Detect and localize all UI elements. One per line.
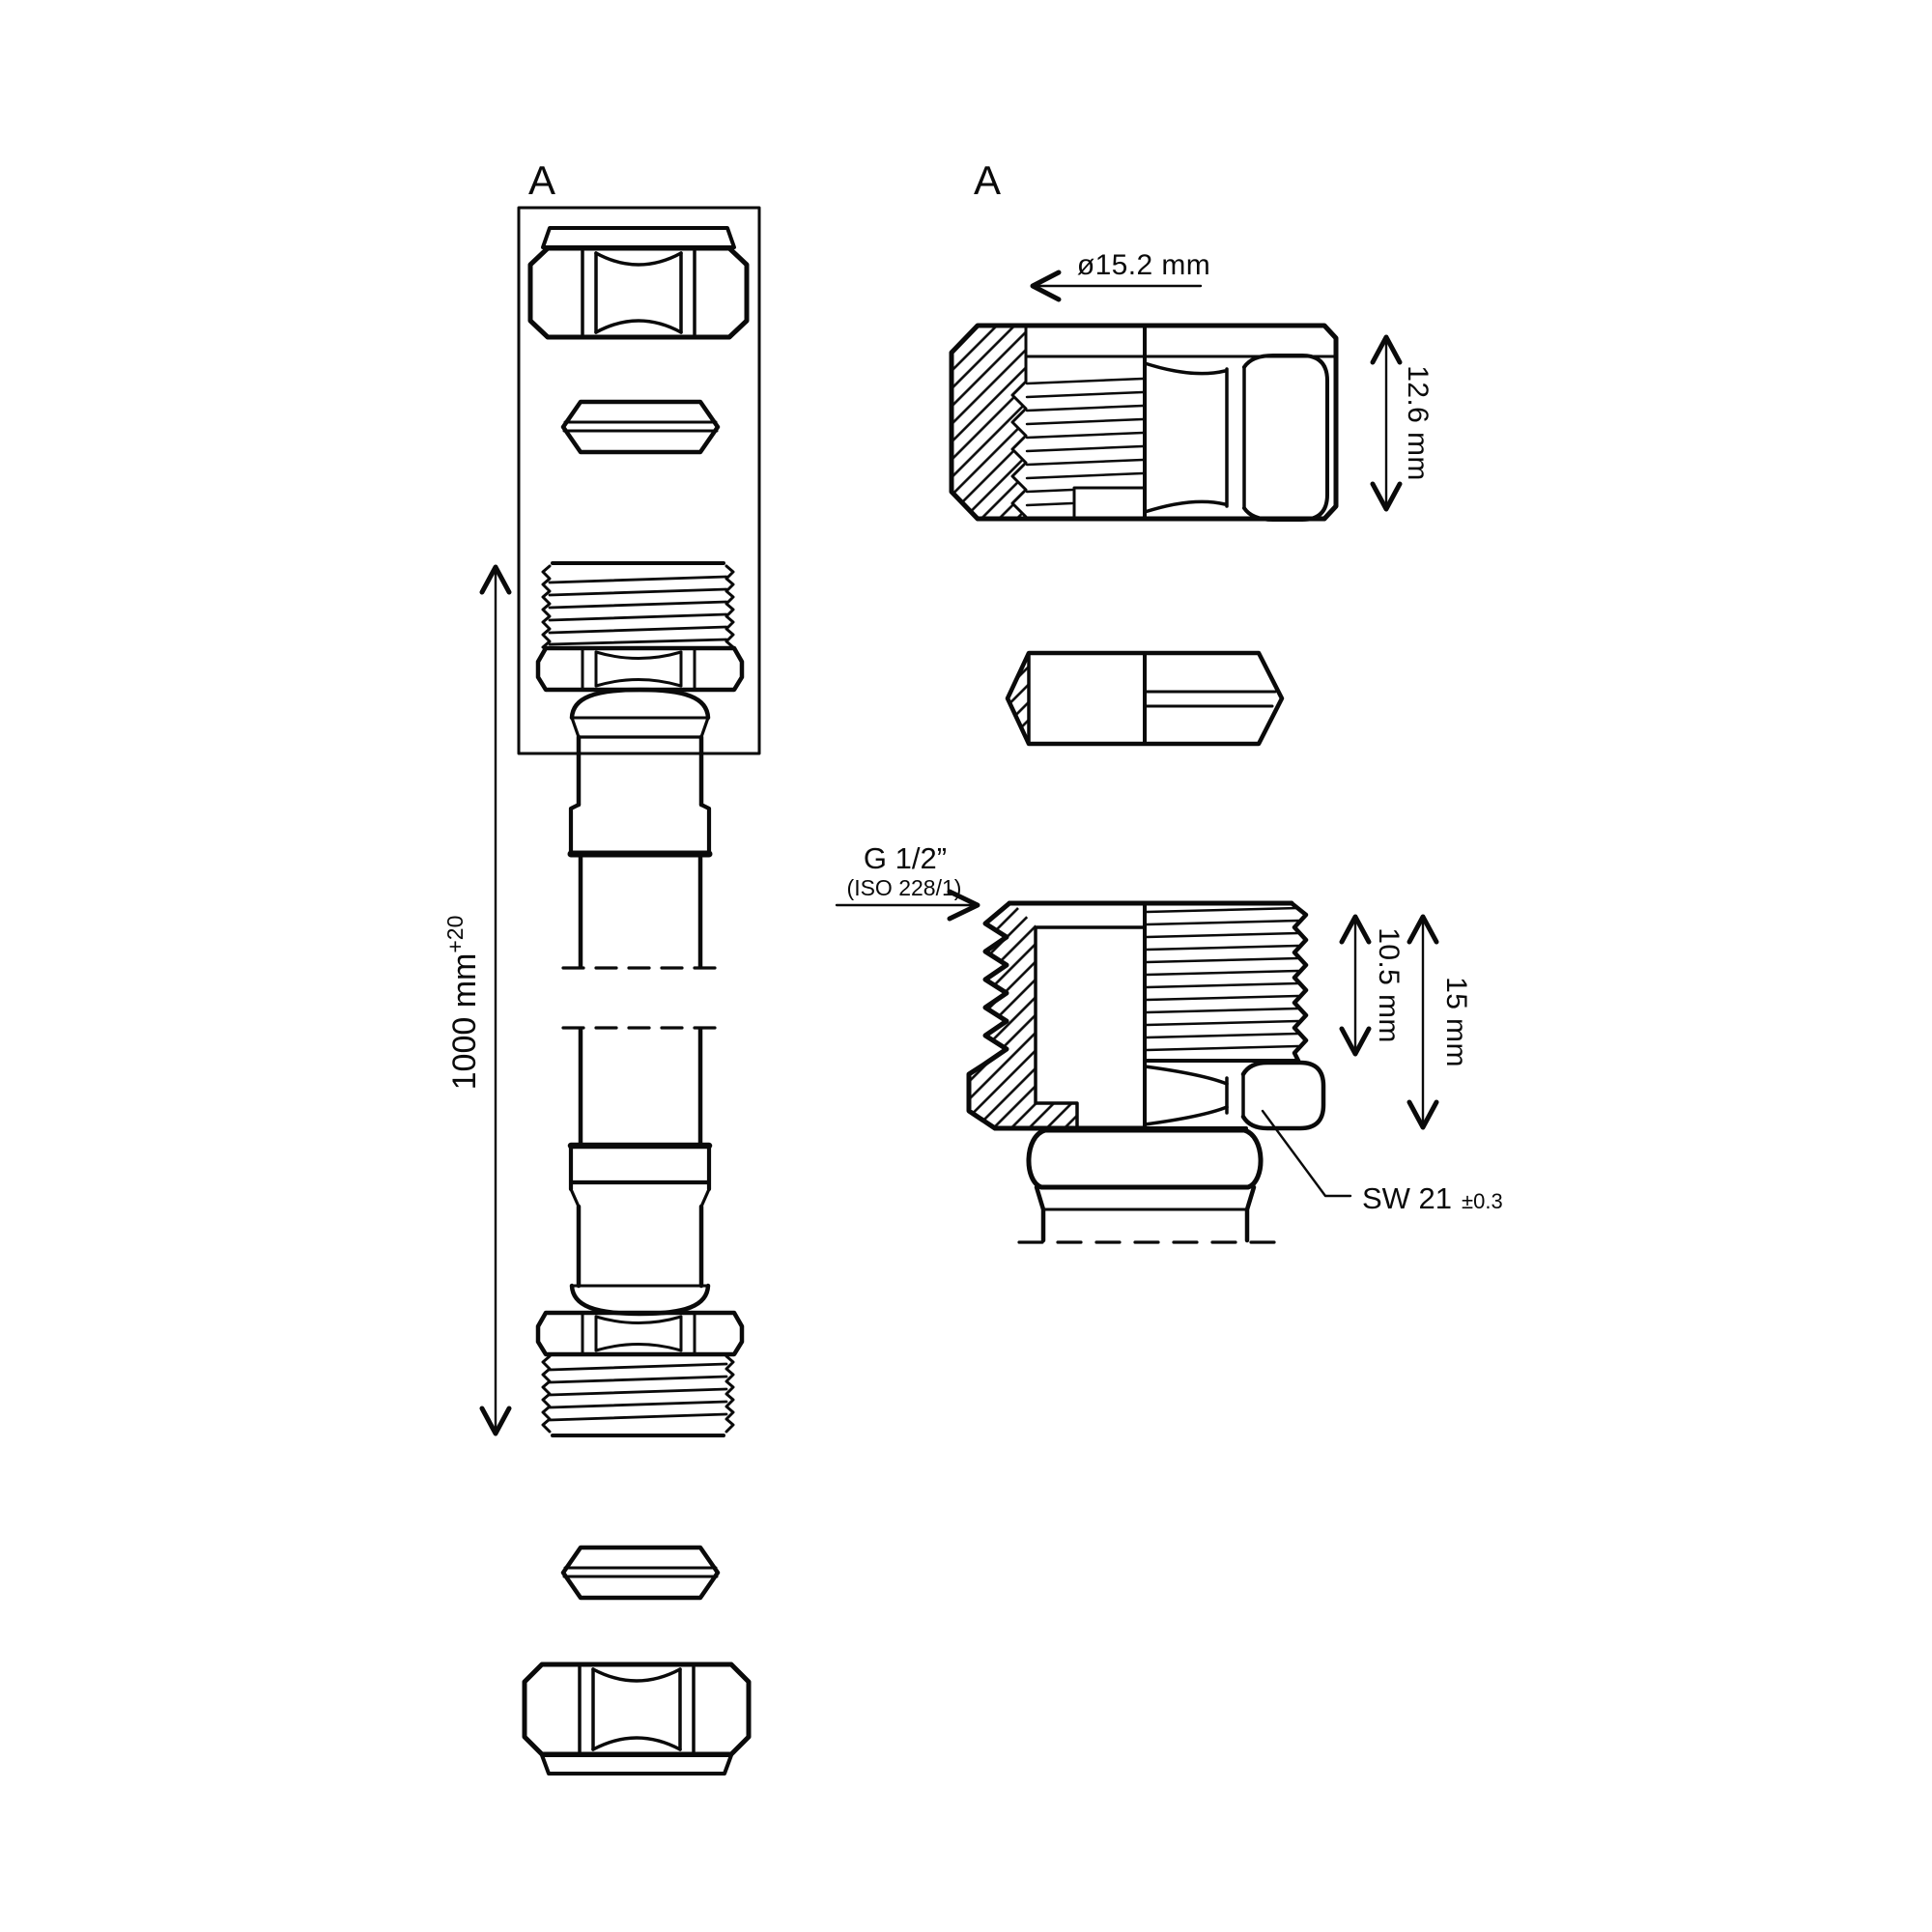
nut-facet-arcs <box>596 253 681 332</box>
nut-outline <box>530 248 747 337</box>
nut-facet-arcs <box>593 1669 680 1749</box>
detail-view-a: A ø15.2 mm <box>837 157 1503 1242</box>
seal-bottom <box>563 1548 718 1598</box>
insert-length-text: 15 mm <box>1440 977 1472 1067</box>
nut-flange <box>543 228 734 247</box>
pipe-walls <box>1037 1187 1254 1240</box>
diameter-text: ø15.2 mm <box>1077 249 1210 281</box>
hex-facet-arcs <box>1145 1066 1227 1124</box>
pipe-upper-walls <box>581 858 700 967</box>
external-thread-profile <box>1292 903 1306 1061</box>
hex-facet-edges <box>582 650 695 688</box>
dimension-diameter: ø15.2 mm <box>1032 249 1210 299</box>
seal-parting-lines <box>1145 692 1275 706</box>
fitting-bottom <box>538 1146 742 1435</box>
detail-callout-label: A <box>528 157 555 203</box>
dimension-insert-length: 15 mm <box>1409 916 1472 1128</box>
collar-bulge <box>572 1286 708 1314</box>
hex-facet-edges <box>1227 1074 1243 1117</box>
dimension-nut-height: 12.6 mm <box>1373 336 1434 510</box>
thread-profile-left <box>543 566 550 647</box>
leader-line <box>1263 1111 1350 1196</box>
pipe-break-lines <box>563 968 718 1028</box>
seal-parting-lines <box>564 422 717 431</box>
thread-profile-left <box>543 1356 550 1432</box>
seal-parting-lines <box>564 1568 717 1577</box>
sleeve-band <box>571 805 709 852</box>
thread-callout: G 1/2” (ISO 228/1) <box>837 841 978 919</box>
drawing-sheet: A <box>0 0 1932 1932</box>
dimension-thread-length: 10.5 mm <box>1342 916 1405 1055</box>
section-hatch <box>952 326 1026 519</box>
external-thread-lines <box>1147 908 1298 1050</box>
pipe-lower-walls <box>581 1029 700 1146</box>
technical-drawing: A <box>0 0 1932 1932</box>
sleeve-band <box>571 1146 709 1189</box>
seal-outline <box>563 1548 718 1598</box>
nut-flange <box>542 1755 731 1774</box>
hex-facet-arcs <box>596 652 681 686</box>
thread-crest-lines <box>550 1364 726 1420</box>
wrench-size-text: SW 21±0.3 <box>1362 1181 1503 1215</box>
thread-crest-lines <box>550 577 726 644</box>
pipe <box>563 858 718 1146</box>
nut-half-section <box>952 326 1336 520</box>
hex-corner-facet <box>1243 1063 1323 1128</box>
union-nut-top <box>530 228 747 337</box>
hex-outline <box>538 648 742 690</box>
hex-facet-edges <box>1227 367 1244 508</box>
nut-outline <box>525 1664 749 1754</box>
thread-profile-right <box>726 1356 733 1432</box>
hex-facet-arcs <box>1145 363 1225 512</box>
thread-length-text: 10.5 mm <box>1373 927 1405 1043</box>
detail-callout-box <box>519 208 759 753</box>
nut-height-text: 12.6 mm <box>1402 365 1434 481</box>
sleeve-body <box>579 737 701 805</box>
fitting-top <box>538 563 742 854</box>
thread-size-text: G 1/2” <box>864 841 947 875</box>
fitting-half-section <box>969 903 1323 1242</box>
hex-facet-edges <box>582 1315 695 1352</box>
thread-runout-step <box>1074 488 1143 519</box>
thread-standard-text: (ISO 228/1) <box>847 875 962 900</box>
neck-taper <box>571 1189 709 1207</box>
hex-outline <box>538 1313 742 1354</box>
section-hatch <box>969 903 1077 1128</box>
collar-bulge <box>572 690 708 718</box>
length-dimension-text: 1000 mm+20 <box>442 916 483 1091</box>
internal-thread-lines-short <box>1027 490 1072 505</box>
section-hatch <box>1008 653 1029 744</box>
sleeve-body <box>579 1207 701 1286</box>
bore-outline <box>1036 927 1143 1128</box>
dimension-length: 1000 mm+20 <box>442 566 509 1435</box>
thread-profile-right <box>726 566 733 647</box>
hex-facet-arcs <box>596 1317 681 1350</box>
detail-view-label: A <box>974 157 1001 203</box>
seal-half-section <box>1008 653 1282 744</box>
seal-top <box>563 402 718 452</box>
internal-thread-lines <box>1027 379 1143 478</box>
union-nut-bottom <box>525 1664 749 1774</box>
left-assembly-view: A <box>442 157 759 1774</box>
hex-corner-facet <box>1244 355 1327 520</box>
neck-taper <box>572 718 708 737</box>
seal-outline <box>563 402 718 452</box>
collar-bulge <box>1029 1130 1261 1187</box>
